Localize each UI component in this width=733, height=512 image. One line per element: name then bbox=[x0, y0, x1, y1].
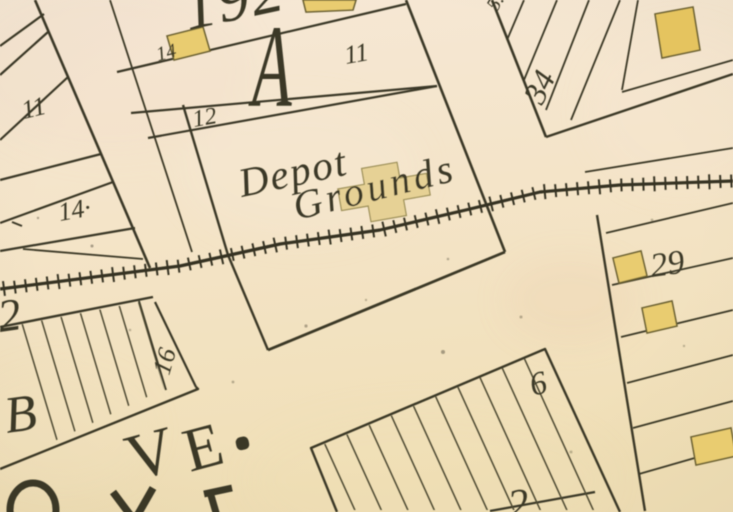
svg-text:12: 12 bbox=[191, 103, 219, 133]
svg-text:14·: 14· bbox=[56, 193, 93, 227]
svg-text:29: 29 bbox=[648, 244, 687, 285]
svg-text:A: A bbox=[248, 1, 292, 132]
svg-text:11: 11 bbox=[342, 37, 371, 70]
